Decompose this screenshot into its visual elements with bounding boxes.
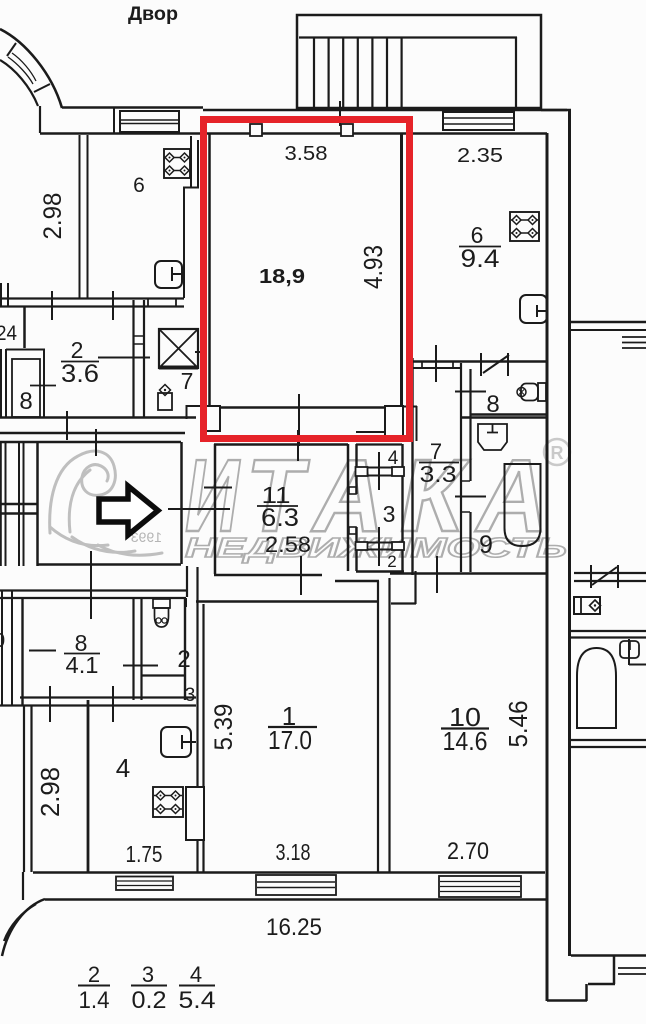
svg-text:2.98: 2.98: [35, 767, 65, 817]
svg-text:9: 9: [479, 531, 493, 559]
svg-text:2.70: 2.70: [447, 838, 489, 865]
svg-text:1.4: 1.4: [79, 987, 110, 1014]
svg-text:8: 8: [19, 388, 32, 415]
svg-text:2.98: 2.98: [39, 193, 67, 240]
svg-text:R: R: [551, 443, 564, 463]
svg-text:6: 6: [133, 174, 145, 197]
svg-text:17.0: 17.0: [268, 725, 312, 755]
svg-text:3: 3: [383, 501, 396, 527]
svg-text:14.6: 14.6: [443, 726, 488, 756]
svg-text:3.18: 3.18: [276, 839, 311, 865]
svg-text:18,9: 18,9: [259, 266, 305, 288]
svg-text:3: 3: [185, 685, 196, 706]
svg-text:3.58: 3.58: [285, 143, 328, 165]
svg-text:4: 4: [190, 962, 202, 987]
svg-text:4: 4: [388, 448, 399, 469]
svg-text:6.3: 6.3: [261, 504, 299, 532]
svg-text:3.6: 3.6: [61, 360, 99, 388]
svg-text:5.46: 5.46: [503, 701, 533, 748]
svg-text:2.35: 2.35: [457, 145, 503, 167]
svg-text:2.58: 2.58: [265, 532, 311, 557]
svg-text:7: 7: [181, 368, 194, 394]
svg-text:0.2: 0.2: [132, 987, 167, 1014]
svg-text:2: 2: [387, 552, 396, 571]
svg-text:16.25: 16.25: [266, 914, 322, 941]
svg-text:2: 2: [88, 962, 100, 987]
svg-text:24: 24: [0, 322, 17, 345]
svg-text:9.4: 9.4: [461, 245, 500, 273]
svg-text:НЕДВИЖИМОСТЬ: НЕДВИЖИМОСТЬ: [185, 532, 567, 563]
svg-text:Двор: Двор: [128, 4, 178, 25]
svg-text:4.93: 4.93: [358, 245, 388, 289]
svg-text:5.39: 5.39: [210, 704, 238, 751]
svg-text:8: 8: [486, 391, 499, 418]
svg-text:3.3: 3.3: [420, 461, 457, 487]
svg-text:4: 4: [116, 753, 130, 783]
svg-text:2: 2: [177, 646, 190, 673]
svg-text:1.75: 1.75: [126, 841, 163, 867]
svg-text:3: 3: [142, 962, 154, 987]
svg-text:4.1: 4.1: [66, 652, 99, 678]
svg-text:5.4: 5.4: [179, 987, 216, 1014]
svg-text:0: 0: [0, 630, 5, 652]
